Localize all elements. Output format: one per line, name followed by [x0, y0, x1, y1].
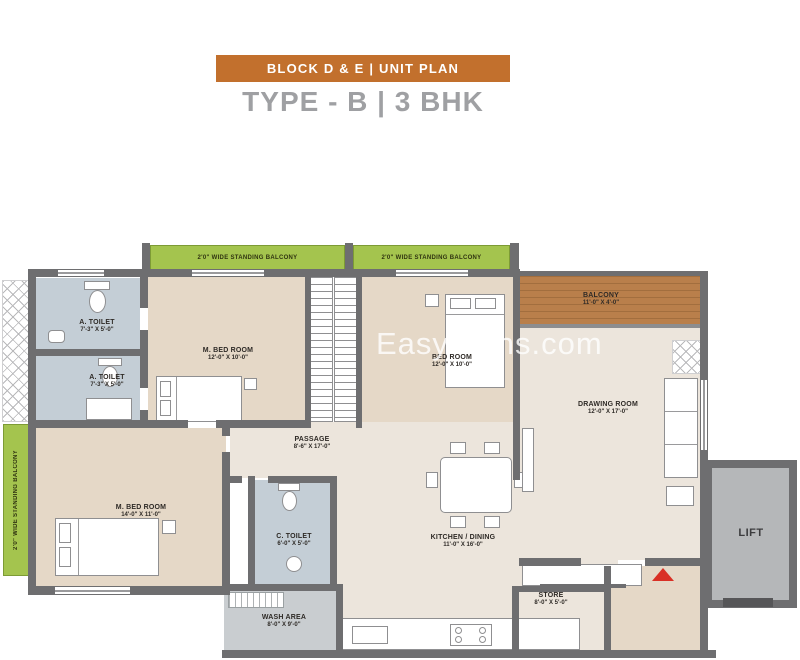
wall — [513, 269, 520, 480]
room-name: A. TOILET — [89, 374, 125, 382]
room-label-kitchen-dining: KITCHEN / DINING 11'-0" X 16'-0" — [431, 534, 496, 550]
wall — [222, 650, 716, 658]
pillow — [160, 381, 171, 397]
window-line — [55, 590, 130, 592]
standing-balcony-label: 2'0" WIDE STANDING BALCONY — [382, 255, 482, 261]
room-label-lift: LIFT — [738, 527, 763, 539]
duct-hatch-drawing — [672, 340, 702, 374]
wall — [268, 476, 337, 483]
side-table — [244, 378, 257, 390]
burner — [455, 636, 462, 643]
window-line — [58, 272, 104, 274]
door-gap — [140, 308, 148, 330]
burner — [479, 627, 486, 634]
pillow — [450, 298, 471, 309]
room-dim: 8'-0" X 9'-0" — [262, 623, 306, 630]
wall — [330, 476, 337, 588]
door-gap — [140, 388, 148, 410]
room-dim: 8'-0" X 5'-0" — [534, 601, 567, 608]
wall — [356, 269, 362, 428]
side-table — [162, 520, 176, 534]
wall — [142, 243, 150, 271]
room-dim: 14'-0" X 11'-0" — [116, 513, 166, 520]
dining-chair — [426, 472, 438, 488]
wall — [28, 349, 147, 356]
window-line — [192, 272, 264, 274]
pillow — [59, 523, 71, 543]
room-label-drawing-room: DRAWING ROOM 12'-0" X 17'-0" — [578, 401, 638, 417]
room-name: PASSAGE — [294, 436, 331, 444]
wall — [305, 269, 311, 428]
wall — [28, 269, 36, 594]
wall — [519, 558, 581, 566]
wall — [228, 476, 242, 483]
room-name: M. BED ROOM — [203, 347, 253, 355]
wardrobe-strip-1 — [310, 276, 333, 422]
standing-balcony-label: 2'0" WIDE STANDING BALCONY — [13, 450, 19, 550]
room-label-wash-area: WASH AREA 8'-0" X 9'-0" — [262, 614, 306, 630]
lift-wall — [705, 460, 712, 608]
pillow — [475, 298, 496, 309]
floor-plan-page: BLOCK D & E | UNIT PLAN TYPE - B | 3 BHK… — [0, 0, 800, 660]
burner — [479, 636, 486, 643]
room-dim: 11'-0" X 4'-0" — [583, 301, 619, 308]
room-label-a-toilet-2: A. TOILET 7'-3" X 5'-0" — [89, 374, 125, 390]
dining-chair — [450, 516, 466, 528]
bed-fold-line — [176, 377, 177, 421]
pillow — [160, 400, 171, 416]
wall — [519, 271, 707, 276]
room-dim: 7'-3" X 5'-0" — [89, 383, 125, 390]
wall — [345, 243, 353, 271]
entrance-arrow-icon — [652, 568, 674, 581]
standing-balcony-label: 2'0" WIDE STANDING BALCONY — [198, 255, 298, 261]
toilet-bowl — [282, 491, 297, 511]
wall — [222, 428, 230, 436]
room-dim: 6'-0" X 5'-0" — [276, 542, 312, 549]
room-dim: 7'-3" X 5'-0" — [79, 328, 115, 335]
room-name: STORE — [534, 592, 567, 600]
wall — [604, 566, 611, 658]
room-dim: 12'-0" X 10'-0" — [203, 356, 253, 363]
room-name: M. BED ROOM — [116, 504, 166, 512]
sofa-cushion-line — [665, 444, 697, 445]
room-label-passage: PASSAGE 8'-6" X 17'-0" — [294, 436, 331, 452]
lift-door — [723, 598, 773, 607]
room-name: BALCONY — [583, 292, 619, 300]
room-label-m-bed-bottom: M. BED ROOM 14'-0" X 11'-0" — [116, 504, 166, 520]
standing-balcony-top-left: 2'0" WIDE STANDING BALCONY — [150, 245, 345, 270]
bed-fold-line — [446, 314, 504, 315]
wall — [645, 558, 707, 566]
watermark: EasyPlans.com — [376, 326, 603, 362]
standing-balcony-top-right: 2'0" WIDE STANDING BALCONY — [353, 245, 510, 270]
wall — [248, 476, 255, 588]
wall — [510, 243, 519, 271]
lift-wall — [705, 460, 797, 468]
wall — [28, 420, 188, 428]
wash-basin — [48, 330, 65, 343]
room-name: KITCHEN / DINING — [431, 534, 496, 542]
bed-fold-line — [78, 519, 79, 575]
toilet-tank — [84, 281, 110, 290]
dining-chair — [450, 442, 466, 454]
room-name: DRAWING ROOM — [578, 401, 638, 409]
block-banner: BLOCK D & E | UNIT PLAN — [216, 55, 510, 82]
toilet-bowl — [89, 290, 106, 313]
room-dim: 11'-0" X 16'-0" — [431, 543, 496, 550]
room-dim: 12'-0" X 17'-0" — [578, 410, 638, 417]
dining-chair — [484, 516, 500, 528]
burner — [455, 627, 462, 634]
wall — [222, 584, 343, 591]
wall — [222, 452, 230, 588]
banner-text: BLOCK D & E | UNIT PLAN — [267, 61, 459, 76]
room-label-a-toilet-1: A. TOILET 7'-3" X 5'-0" — [79, 319, 115, 335]
entry-bench — [522, 564, 642, 586]
tv-unit — [522, 428, 534, 492]
window-line — [396, 272, 468, 274]
shower-tray — [86, 398, 132, 420]
toilet-tank — [278, 483, 300, 491]
room-name: C. TOILET — [276, 533, 312, 541]
room-label-c-toilet: C. TOILET 6'-0" X 5'-0" — [276, 533, 312, 549]
wash-basin — [286, 556, 302, 572]
pillow — [59, 547, 71, 567]
room-name: WASH AREA — [262, 614, 306, 622]
wardrobe-strip-2 — [334, 276, 357, 422]
duct-hatch-top-left — [2, 280, 29, 422]
wall — [512, 586, 611, 592]
wash-slab — [228, 592, 284, 608]
wall — [216, 420, 310, 428]
room-dim: 8'-6" X 17'-0" — [294, 445, 331, 452]
sofa-cushion-line — [665, 411, 697, 412]
toilet-tank — [98, 358, 122, 366]
room-label-store: STORE 8'-0" X 5'-0" — [534, 592, 567, 608]
lift-wall — [789, 460, 797, 608]
side-table — [425, 294, 439, 307]
wall — [512, 586, 519, 654]
dining-chair — [484, 442, 500, 454]
room-label-m-bed-top: M. BED ROOM 12'-0" X 10'-0" — [203, 347, 253, 363]
room-name: A. TOILET — [79, 319, 115, 327]
wall — [336, 584, 343, 654]
kitchen-sink — [352, 626, 388, 644]
dining-table — [440, 457, 512, 513]
side-table — [666, 486, 694, 506]
page-title: TYPE - B | 3 BHK — [216, 86, 510, 118]
sofa — [664, 378, 698, 478]
window-line — [703, 380, 705, 450]
room-label-balcony: BALCONY 11'-0" X 4'-0" — [583, 292, 619, 308]
room-dim: 12'-0" X 10'-0" — [432, 363, 472, 370]
standing-balcony-left: 2'0" WIDE STANDING BALCONY — [3, 424, 29, 576]
